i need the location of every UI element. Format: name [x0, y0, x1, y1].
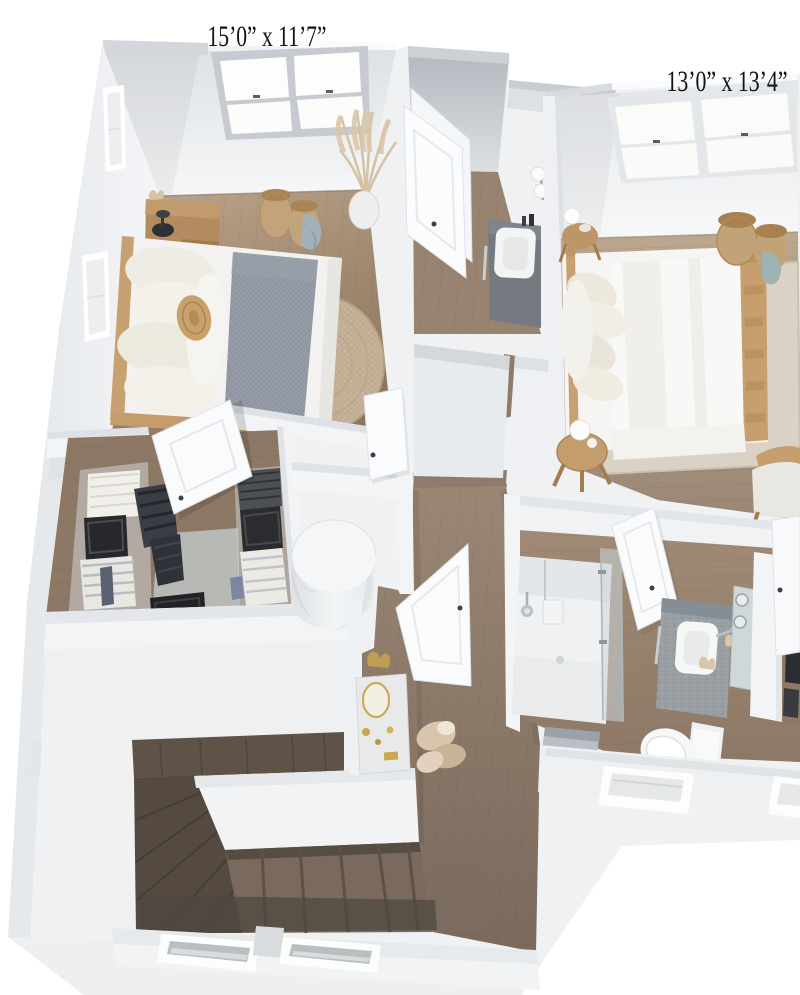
svg-text:15’0” x 11’7”: 15’0” x 11’7” [208, 20, 327, 53]
svg-text:13’0” x 13’4”: 13’0” x 13’4” [667, 65, 788, 98]
